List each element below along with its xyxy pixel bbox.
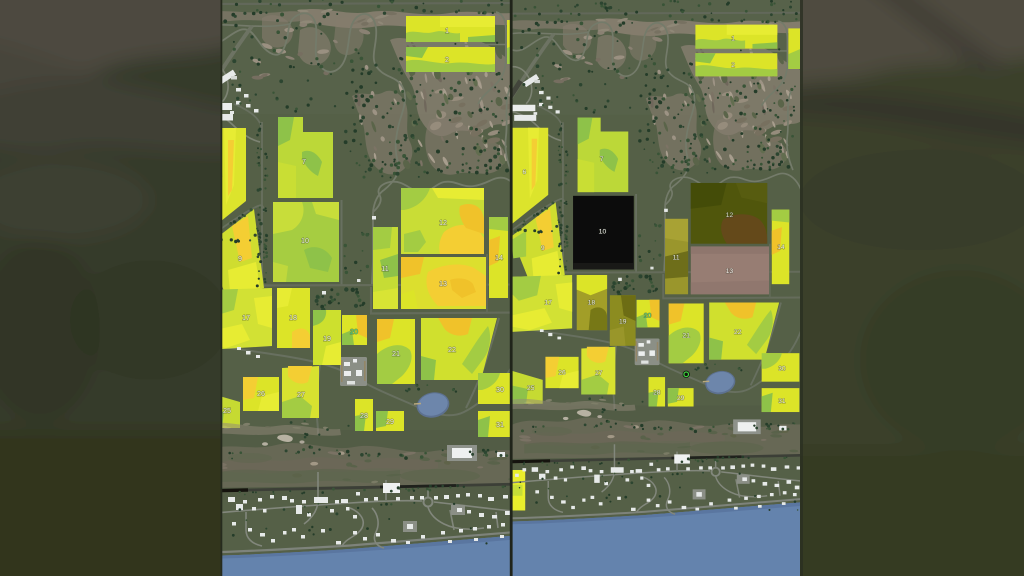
svg-text:13: 13 [726,268,734,275]
svg-text:19: 19 [619,319,627,326]
svg-text:10: 10 [599,229,607,236]
svg-text:10: 10 [301,236,309,245]
svg-text:13: 13 [439,279,447,288]
svg-text:12: 12 [439,218,447,227]
svg-text:18: 18 [289,313,297,322]
svg-text:12: 12 [726,212,734,219]
svg-text:11: 11 [673,254,680,261]
svg-text:18: 18 [588,299,596,306]
svg-text:11: 11 [381,264,388,273]
svg-text:19: 19 [323,334,331,343]
